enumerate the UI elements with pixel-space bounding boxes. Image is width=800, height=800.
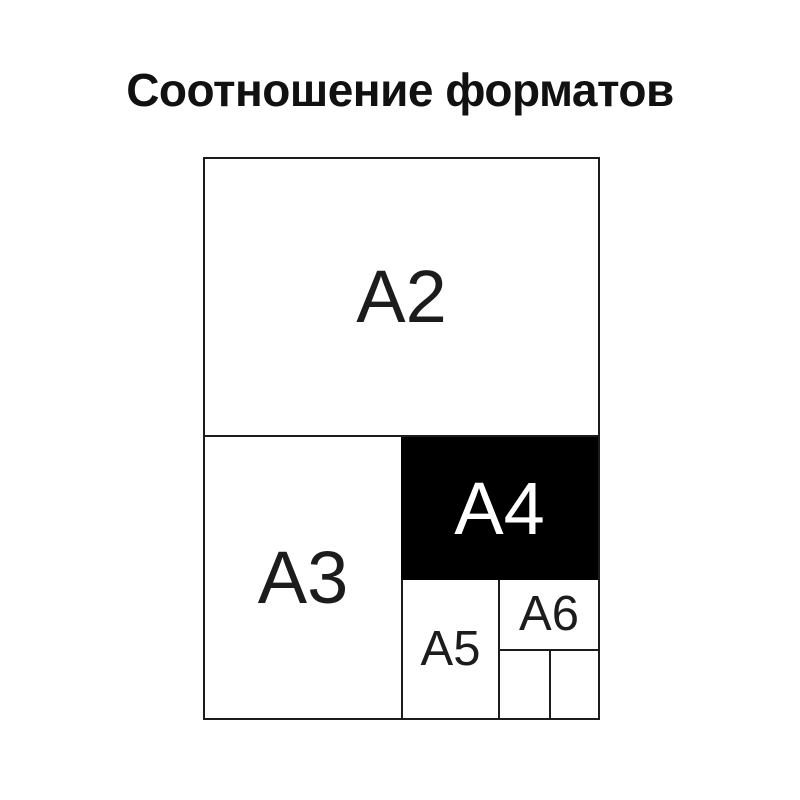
- format-label-a4: A4: [454, 472, 545, 546]
- format-label-a5: A5: [421, 625, 481, 674]
- page-title: Соотношение форматов: [0, 66, 800, 114]
- format-label-a6: A6: [519, 590, 579, 639]
- format-cell-a6: A6: [500, 580, 598, 649]
- format-cell-a2: A2: [205, 159, 598, 435]
- format-cell-small-left: [500, 653, 549, 718]
- page: Соотношение форматов A2 A3 A4 A5 A6: [0, 0, 800, 800]
- format-label-a3: A3: [258, 541, 349, 615]
- format-cell-a4-highlighted: A4: [401, 437, 598, 580]
- paper-format-diagram: A2 A3 A4 A5 A6: [203, 157, 600, 720]
- format-cell-small-right: [551, 653, 598, 718]
- divider-a6-bottom: [498, 649, 598, 651]
- format-cell-a3: A3: [205, 437, 401, 718]
- format-cell-a5: A5: [403, 580, 498, 718]
- format-label-a2: A2: [356, 260, 447, 334]
